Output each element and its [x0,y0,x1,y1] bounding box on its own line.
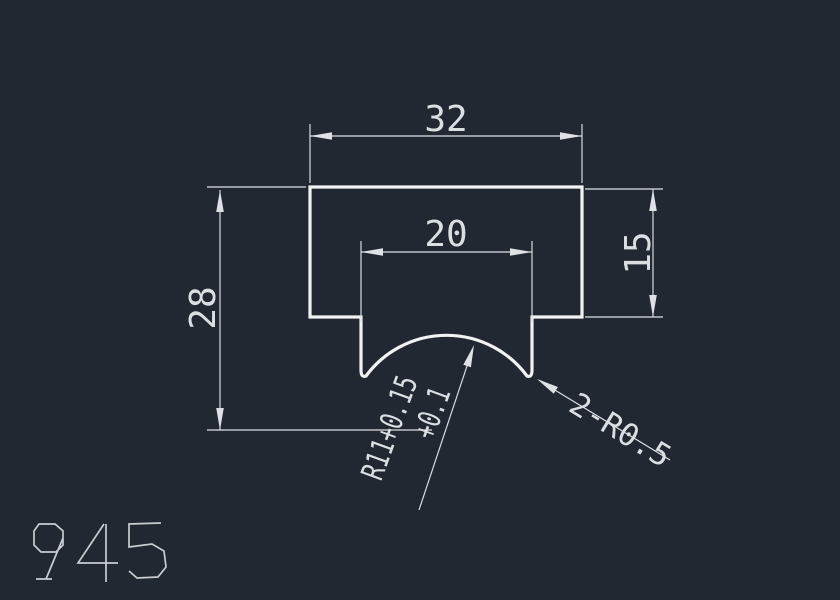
cad-drawing-canvas: 32 20 15 28 R11+0.15 +0.1 2-R0. [0,0,840,600]
dim-arrowhead [560,132,582,140]
dimension-text-right-height: 15 [618,231,659,274]
dimension-text-top-width: 32 [424,99,467,140]
dim-arrowhead [310,132,332,140]
dim-arrowhead [216,408,224,430]
dim-arrowhead [649,295,657,317]
dim-arrowhead [216,190,224,212]
part-number [34,523,166,582]
dim-arrowhead [361,248,383,256]
digit-4 [78,524,118,582]
digit-5 [129,523,166,578]
dim-arrowhead [510,248,532,256]
dimension-top-width: 32 [310,99,582,183]
leader-arrowhead [537,379,558,394]
leader-arrowhead [463,345,474,367]
annotation-text-corner-fillets: 2-R0.5 [563,386,677,475]
dimension-groove-width: 20 [361,214,532,322]
dimension-text-groove-width: 20 [424,214,467,255]
digit-9 [34,524,63,579]
dimension-right-height: 15 [585,189,663,317]
dim-arrowhead [649,189,657,211]
leader-corner-fillets: 2-R0.5 [537,379,677,475]
dimension-text-left-height: 28 [183,286,224,329]
